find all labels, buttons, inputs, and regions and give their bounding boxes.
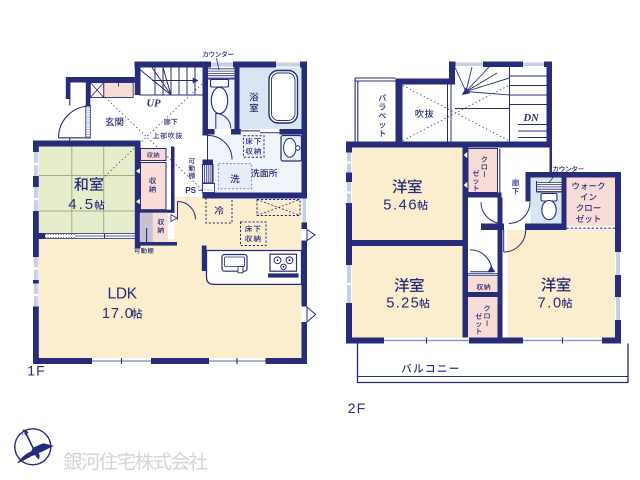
svg-text:UP: UP xyxy=(147,99,162,110)
svg-text:N: N xyxy=(21,427,29,437)
svg-text:LDK: LDK xyxy=(108,286,138,303)
svg-text:PS: PS xyxy=(185,186,196,195)
svg-text:5.25: 5.25 xyxy=(386,296,420,312)
svg-text:5.46: 5.46 xyxy=(383,197,418,213)
svg-text:1F: 1F xyxy=(27,363,45,379)
svg-text:4.5: 4.5 xyxy=(68,196,95,213)
svg-text:17.0: 17.0 xyxy=(102,306,134,322)
svg-text:DN: DN xyxy=(523,113,540,124)
svg-text:2F: 2F xyxy=(348,400,366,416)
svg-text:7.0: 7.0 xyxy=(538,295,563,311)
